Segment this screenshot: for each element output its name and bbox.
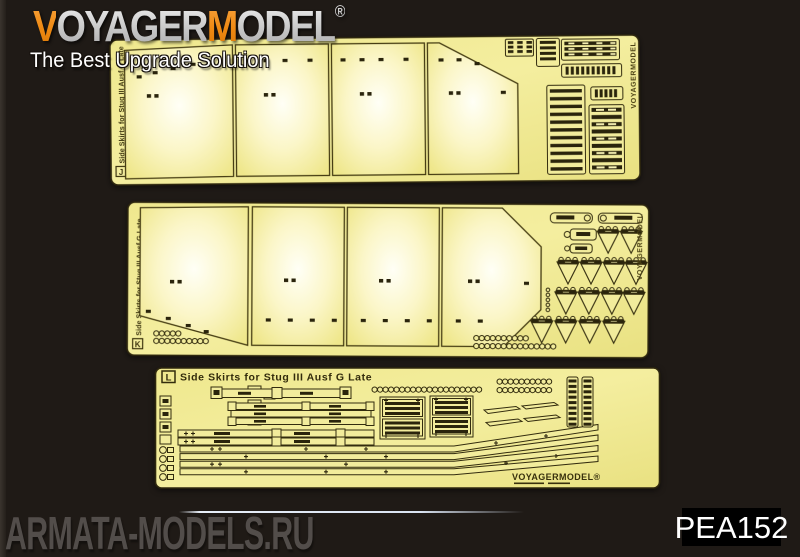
logo-letter-m: M <box>207 2 237 51</box>
photo-etch-fret-l: L Side Skirts for Stug III Ausf G Late <box>154 366 661 490</box>
product-code-badge: PEA152 <box>682 508 781 546</box>
rivet-strip-part <box>546 288 550 312</box>
fret-l-title: L Side Skirts for Stug III Ausf G Late <box>162 371 372 384</box>
comb-part <box>562 64 622 78</box>
product-code: PEA152 <box>675 512 789 543</box>
scan-edge <box>0 0 6 557</box>
fret-l-code: L <box>166 372 172 383</box>
wide-rail-pair <box>178 429 374 446</box>
slotted-bracket-part <box>536 38 559 66</box>
skirt-rail-stack <box>228 402 374 426</box>
fret-k-panels <box>140 206 542 347</box>
product-photo: J Side Skirts for Stug III Ausf G Late <box>0 0 800 557</box>
watermark: ARMATA-MODELS.RU <box>5 510 314 556</box>
brand-tagline: The Best Upgrade Solution <box>30 49 378 73</box>
fret-l-title-text: Side Skirts for Stug III Ausf G Late <box>180 372 372 384</box>
hinge-bar-part <box>550 213 592 223</box>
photo-etch-fret-k: K Side Skirts for Stug III Ausf G Late <box>126 200 651 361</box>
fret-l-brand-text: VOYAGERMODEL® <box>512 472 601 482</box>
brand-logo-wordmark: VOYAGERMODEL® <box>33 3 346 49</box>
logo-letters-oyager: OYAGER <box>57 2 207 51</box>
ladder-part <box>547 85 586 174</box>
logo-letters-odel: ODEL <box>237 2 335 51</box>
logo-letter-v: V <box>33 2 57 51</box>
skirt-rail-part <box>211 387 351 399</box>
fret-k-edge-brand: VOYAGERMODEL <box>637 213 644 280</box>
fret-j-code: J <box>119 168 124 177</box>
grid-bracket-part <box>505 39 533 56</box>
registered-trademark-icon: ® <box>335 2 346 21</box>
ladder-part <box>589 105 625 174</box>
comb-part <box>591 87 623 100</box>
fret-k-code: K <box>135 340 141 349</box>
hinge-grid-block <box>430 396 473 437</box>
triple-rail-part <box>561 39 619 61</box>
brand-logo: VOYAGERMODEL® The Best Upgrade Solution <box>33 3 396 73</box>
fret-j-edge-brand: VOYAGERMODEL <box>630 42 638 109</box>
hinge-grid-block <box>380 397 425 439</box>
hinge-bar-part <box>598 213 642 223</box>
